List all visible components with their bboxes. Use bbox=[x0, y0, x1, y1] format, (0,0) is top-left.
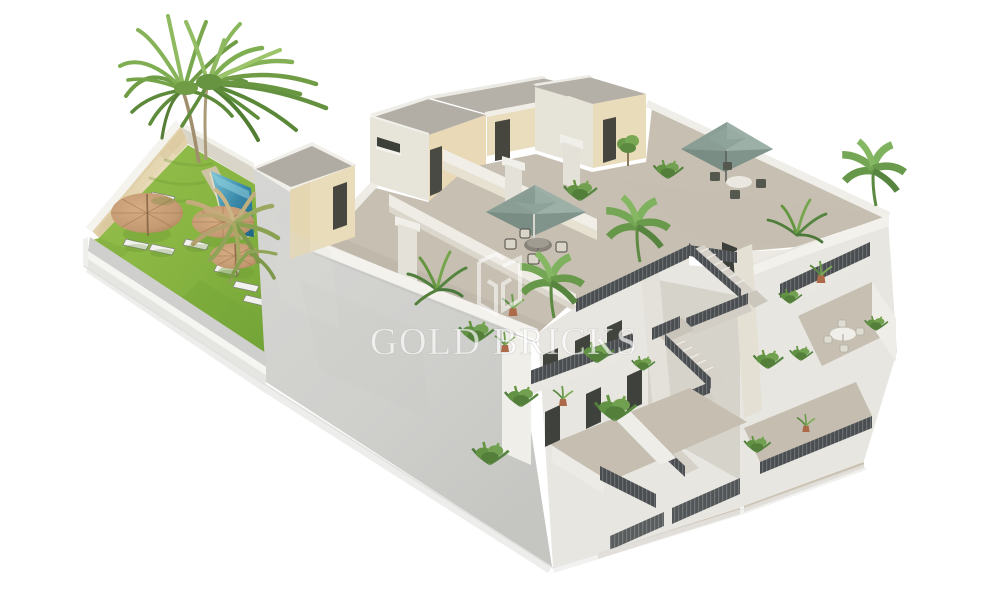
svg-text:GOLD BRICKS: GOLD BRICKS bbox=[370, 321, 639, 363]
